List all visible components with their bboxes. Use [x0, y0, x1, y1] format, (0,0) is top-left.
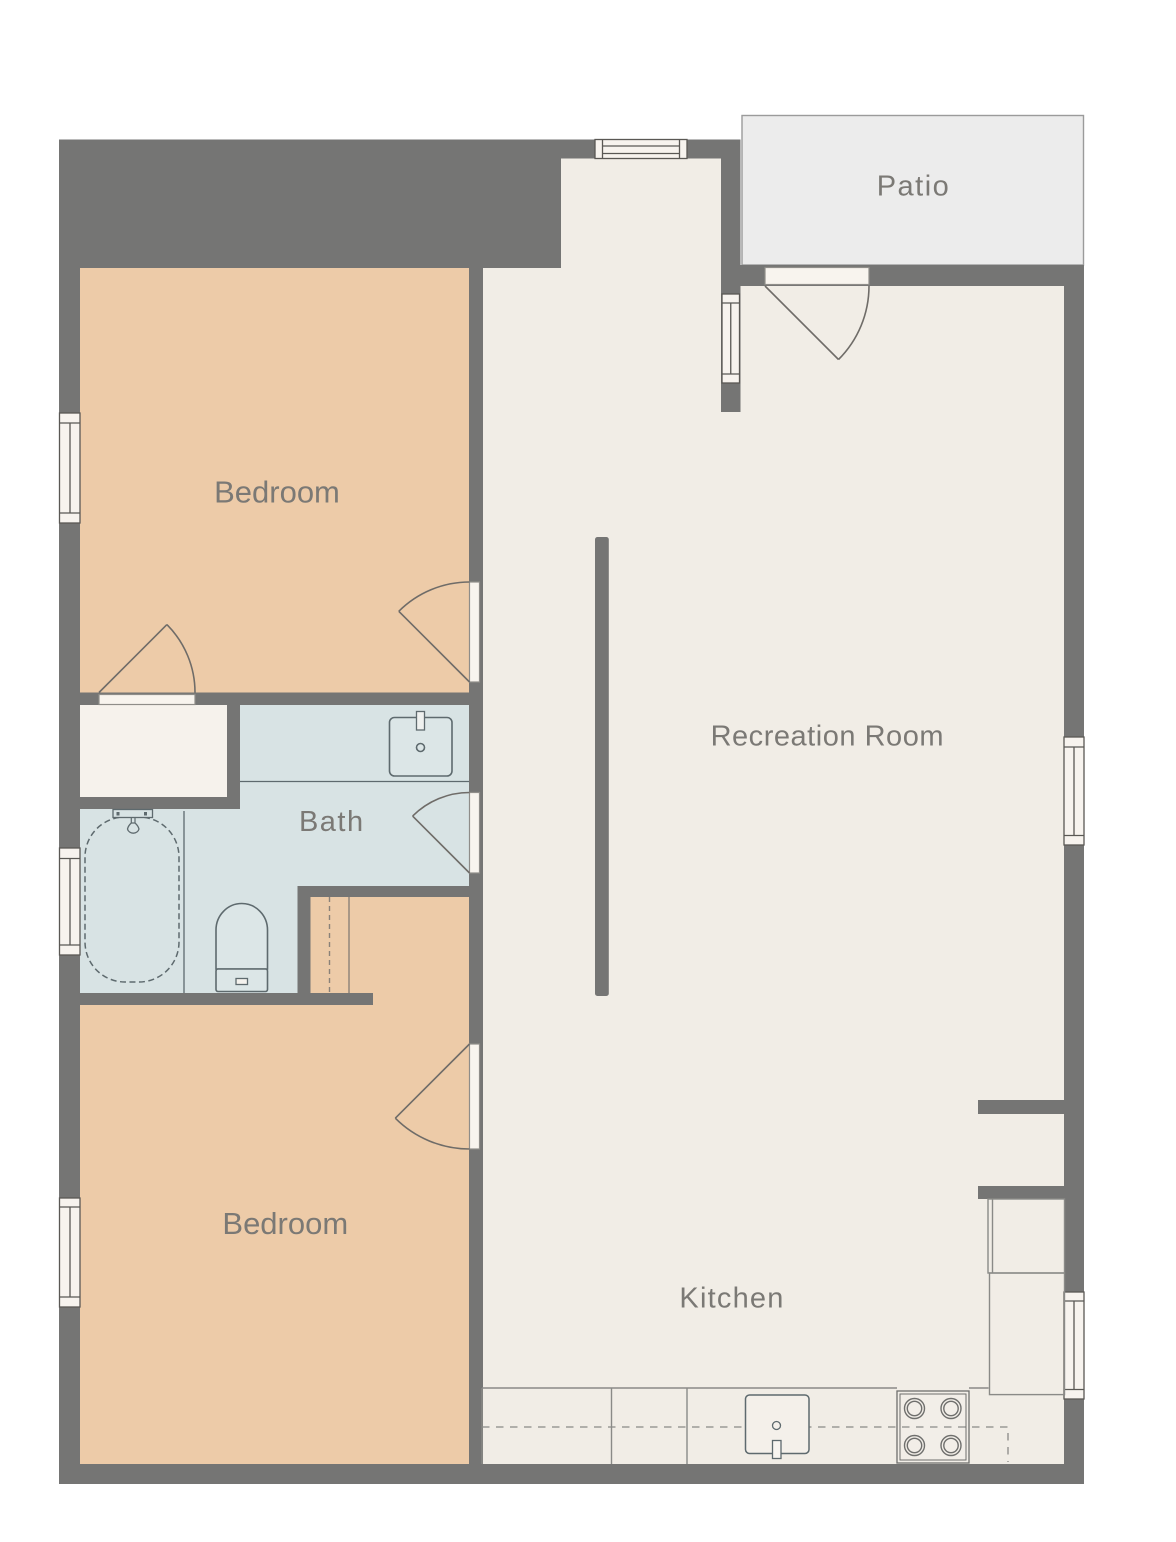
svg-text:Bedroom: Bedroom [214, 475, 340, 510]
svg-text:Kitchen: Kitchen [679, 1283, 784, 1315]
svg-text:Bath: Bath [299, 806, 365, 838]
svg-text:Bedroom: Bedroom [222, 1206, 348, 1241]
svg-text:Patio: Patio [877, 171, 951, 203]
svg-text:Recreation Room: Recreation Room [711, 720, 944, 752]
